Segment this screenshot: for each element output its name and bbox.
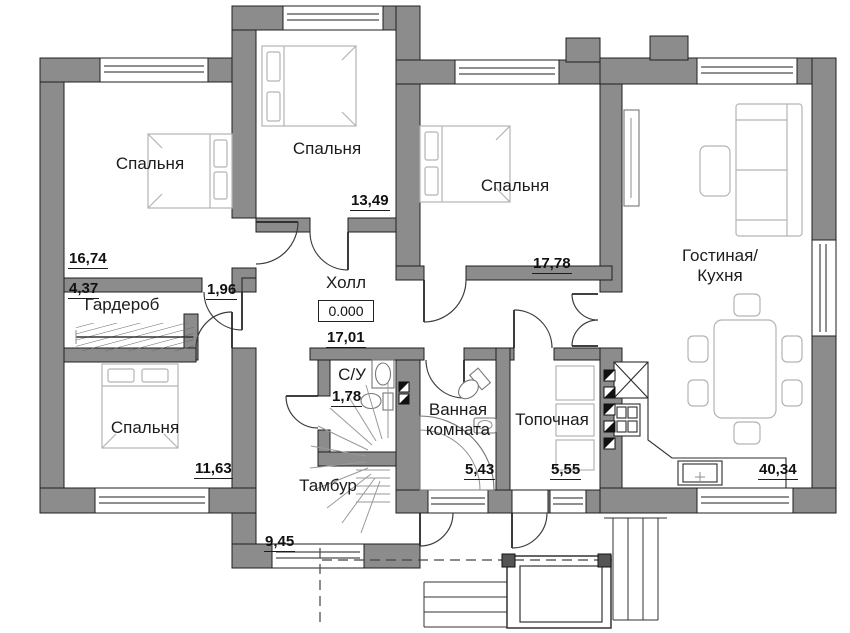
porch xyxy=(320,548,612,628)
room-area-bedroom-top-right: 17,78 xyxy=(532,255,572,274)
room-area-bedroom-bottom-left: 11,63 xyxy=(194,460,233,479)
room-label-bedroom-bottom-left: Спальня xyxy=(90,418,200,438)
dining-table-icon xyxy=(714,320,776,418)
room-label-bedroom-top-mid: Спальня xyxy=(272,139,382,159)
door-entrance xyxy=(420,513,453,546)
window xyxy=(455,60,559,84)
stove-icon xyxy=(614,404,640,436)
kitchen-sink-icon xyxy=(678,461,722,485)
door-wc xyxy=(286,396,318,428)
room-label-living-kitchen: Гостиная/ Кухня xyxy=(655,246,785,286)
room-area-vestibule: 9,45 xyxy=(264,533,295,552)
steps-left xyxy=(424,582,507,627)
door-boiler xyxy=(514,310,552,348)
room-area-living-kitchen: 40,34 xyxy=(758,461,798,480)
room-label-boiler: Топочная xyxy=(506,410,598,430)
room-area-boiler: 5,55 xyxy=(550,461,581,480)
room-label-bedroom-top-right: Спальня xyxy=(460,176,570,196)
post xyxy=(502,554,515,567)
window xyxy=(697,488,793,513)
bed-icon xyxy=(262,46,356,126)
window xyxy=(550,490,586,513)
room-area-bedroom-top-left: 16,74 xyxy=(68,250,108,269)
room-label-hall: Холл xyxy=(300,273,392,293)
tv-cabinet-icon xyxy=(624,110,639,206)
room-label-vestibule: Тамбур xyxy=(283,476,373,496)
room-label-wardrobe: Гардероб xyxy=(66,295,178,315)
floor-plan: Спальня 16,74 Спальня 13,49 Спальня 17,7… xyxy=(0,0,850,633)
window xyxy=(428,490,488,513)
room-area-wc: 1,78 xyxy=(331,388,362,407)
room-area-hall: 17,01 xyxy=(326,329,366,348)
room-label-wc: С/У xyxy=(330,365,374,385)
room-area-corridor: 1,96 xyxy=(206,281,237,300)
door-bedroom-top-right xyxy=(424,280,466,322)
room-area-bathroom: 5,43 xyxy=(464,461,495,480)
door-bedroom-top-mid xyxy=(310,232,348,270)
elevation-mark: 0.000 xyxy=(318,300,374,322)
double-door-kitchen xyxy=(572,294,598,346)
post xyxy=(598,554,611,567)
window xyxy=(100,58,208,82)
room-label-bathroom: Ванная комната xyxy=(406,400,510,440)
coffee-table-icon xyxy=(700,146,730,196)
wardrobe-rail xyxy=(76,323,194,351)
door-boiler-exterior xyxy=(512,513,547,548)
sofa-icon xyxy=(736,104,802,236)
door-gap xyxy=(512,490,548,513)
window xyxy=(812,240,836,336)
steps-right xyxy=(604,518,667,620)
room-area-bedroom-top-mid: 13,49 xyxy=(350,192,390,211)
window xyxy=(697,58,797,84)
room-label-bedroom-top-left: Спальня xyxy=(95,154,205,174)
window xyxy=(283,6,383,30)
floor-plan-drawing xyxy=(0,0,850,633)
door-bedroom-bottom-left xyxy=(196,312,232,348)
fridge-icon xyxy=(614,362,648,398)
wc-sink-icon xyxy=(372,360,394,388)
window xyxy=(95,488,209,513)
